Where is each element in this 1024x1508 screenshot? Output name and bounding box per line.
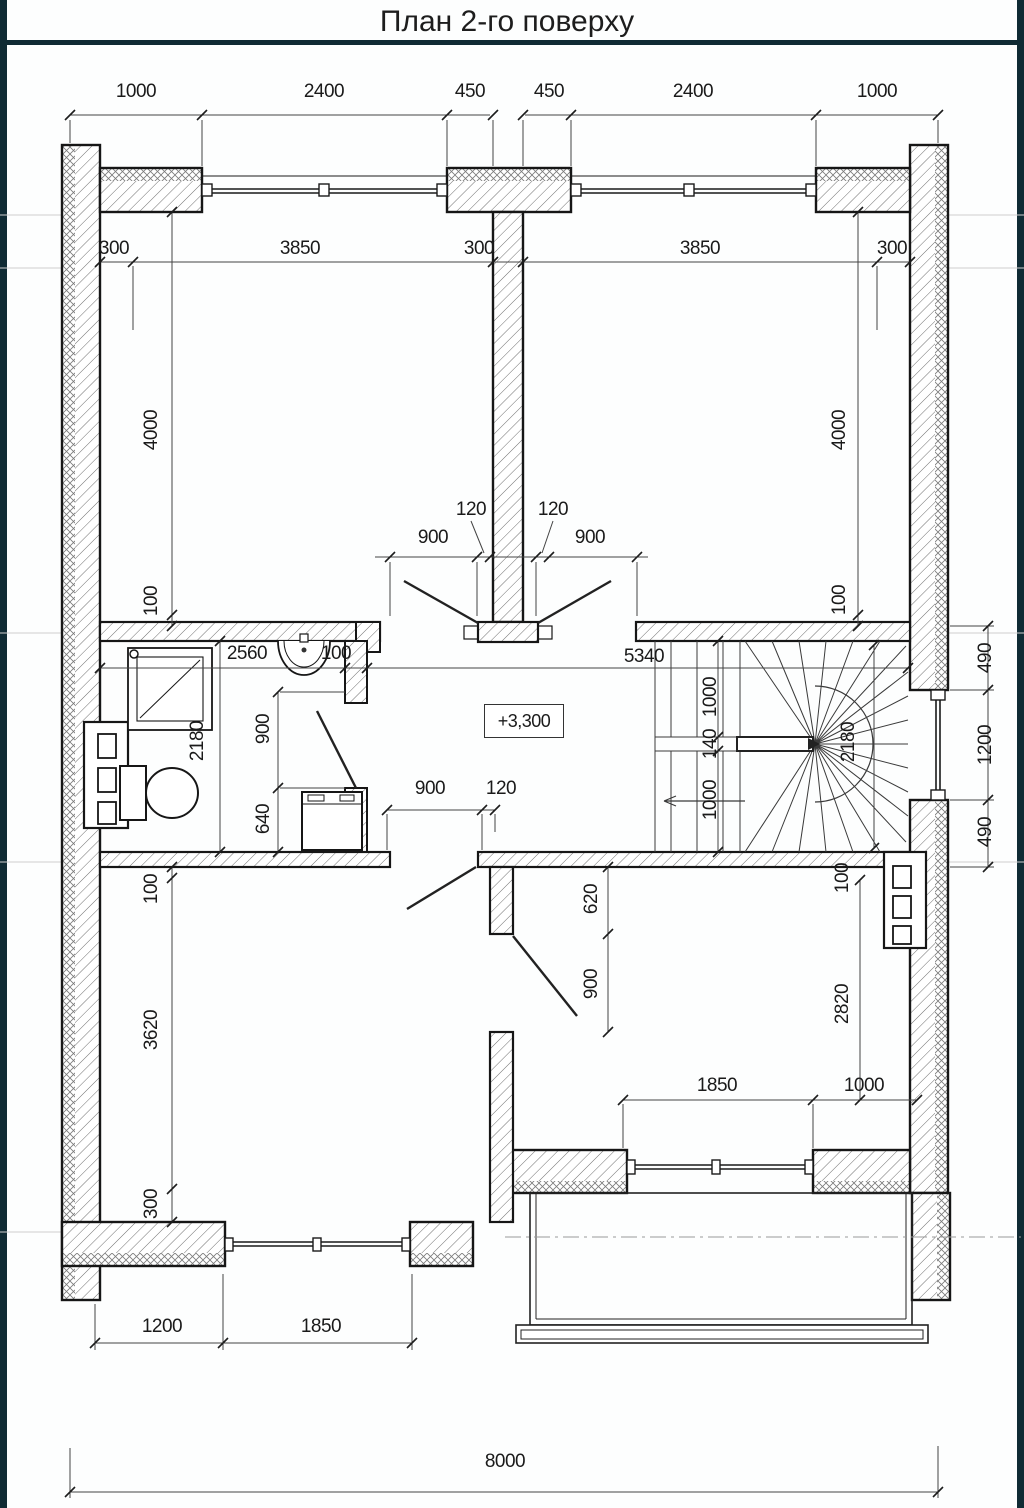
dim-label: 100 [141,586,163,616]
dim-label: 3850 [680,238,720,260]
level-marker: +3,300 [484,704,564,738]
dim-label: 900 [581,969,603,999]
dim-label: 1000 [700,780,722,820]
dim-label: 4000 [141,410,163,450]
dim-label: 120 [486,778,516,800]
dim-label: 900 [575,527,605,549]
dim-label: 1000 [857,81,897,103]
washing-machine [302,792,362,850]
dim-label: 620 [581,884,603,914]
dim-label: 1000 [116,81,156,103]
dimension-lines [70,115,994,1498]
dim-label: 5340 [624,646,664,668]
level-value: +3,300 [498,711,551,732]
dim-label: 8000 [485,1451,525,1473]
dim-label: 490 [975,817,997,847]
dimension-ticks [65,110,993,1497]
dim-label: 3850 [280,238,320,260]
dim-label: 2560 [227,643,267,665]
dim-label: 3620 [141,1010,163,1050]
windows [202,176,945,1251]
dim-label: 2180 [187,721,209,761]
dim-label: 1200 [142,1316,182,1338]
shower [128,648,212,730]
dim-label: 2400 [304,81,344,103]
dim-label: 300 [877,238,907,260]
dim-label: 1850 [697,1075,737,1097]
dim-label: 140 [700,729,722,759]
dim-label: 100 [141,874,163,904]
dim-label: 1850 [301,1316,341,1338]
dim-label: 120 [538,499,568,521]
dim-label: 900 [418,527,448,549]
dim-label: 300 [464,238,494,260]
floor-plan-sheet: План 2-го поверху [0,0,1024,1508]
dim-label: 2820 [832,984,854,1024]
dim-label: 100 [321,643,351,665]
vent-shaft-right [884,852,926,948]
dim-label: 1000 [700,677,722,717]
floor-plan-drawing [0,0,1024,1508]
dim-label: 1000 [844,1075,884,1097]
dim-label: 120 [456,499,486,521]
dim-label: 4000 [829,410,851,450]
dim-label: 100 [832,863,854,893]
dim-label: 100 [829,585,851,615]
dim-label: 490 [975,643,997,673]
dim-label: 2180 [838,722,860,762]
dim-label: 900 [253,714,275,744]
dim-label: 2400 [673,81,713,103]
dim-label: 300 [99,238,129,260]
dim-label: 640 [253,804,275,834]
toilet [120,766,198,820]
dim-label: 450 [534,81,564,103]
dim-label: 900 [415,778,445,800]
dim-label: 300 [141,1189,163,1219]
dim-label: 1200 [975,725,997,765]
staircase [655,641,908,852]
dim-label: 450 [455,81,485,103]
